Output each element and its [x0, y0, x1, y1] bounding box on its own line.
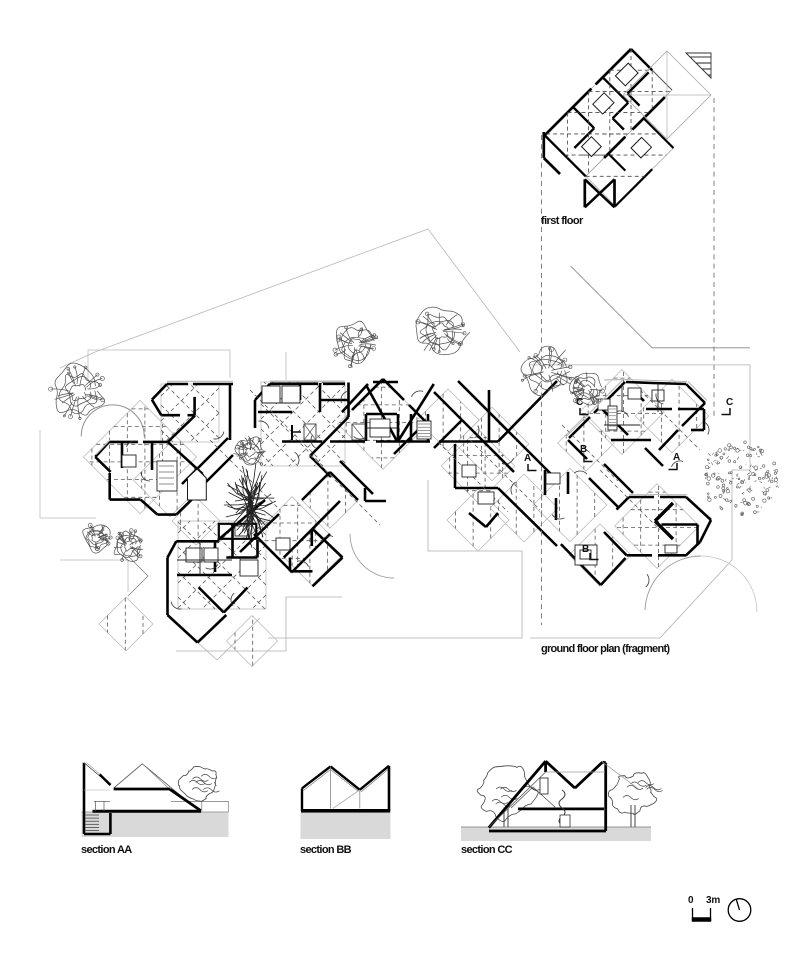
svg-text:B: B: [582, 544, 589, 555]
svg-text:3m: 3m: [706, 895, 720, 906]
svg-text:first floor: first floor: [541, 215, 584, 227]
svg-text:B: B: [580, 444, 587, 455]
svg-text:ground floor plan (fragment): ground floor plan (fragment): [541, 643, 670, 655]
svg-text:C: C: [576, 397, 583, 408]
svg-text:A: A: [524, 453, 531, 464]
svg-text:section BB: section BB: [300, 844, 352, 856]
svg-text:C: C: [726, 397, 733, 408]
svg-text:section AA: section AA: [81, 844, 132, 856]
svg-text:section CC: section CC: [461, 844, 513, 856]
svg-text:A: A: [673, 452, 680, 463]
svg-text:0: 0: [688, 895, 694, 906]
